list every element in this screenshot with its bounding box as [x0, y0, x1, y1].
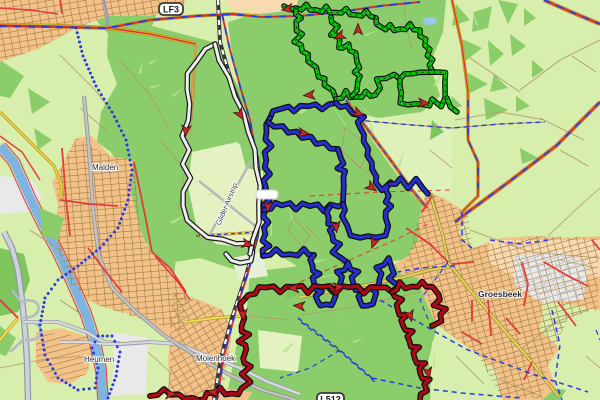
- svg-text:Groesbeek: Groesbeek: [478, 289, 522, 299]
- svg-text:Heumen: Heumen: [84, 355, 114, 364]
- svg-text:LF3: LF3: [163, 4, 179, 14]
- svg-text:L512: L512: [320, 394, 341, 400]
- svg-text:Molenhoek: Molenhoek: [196, 354, 236, 363]
- svg-text:Malden: Malden: [92, 163, 118, 172]
